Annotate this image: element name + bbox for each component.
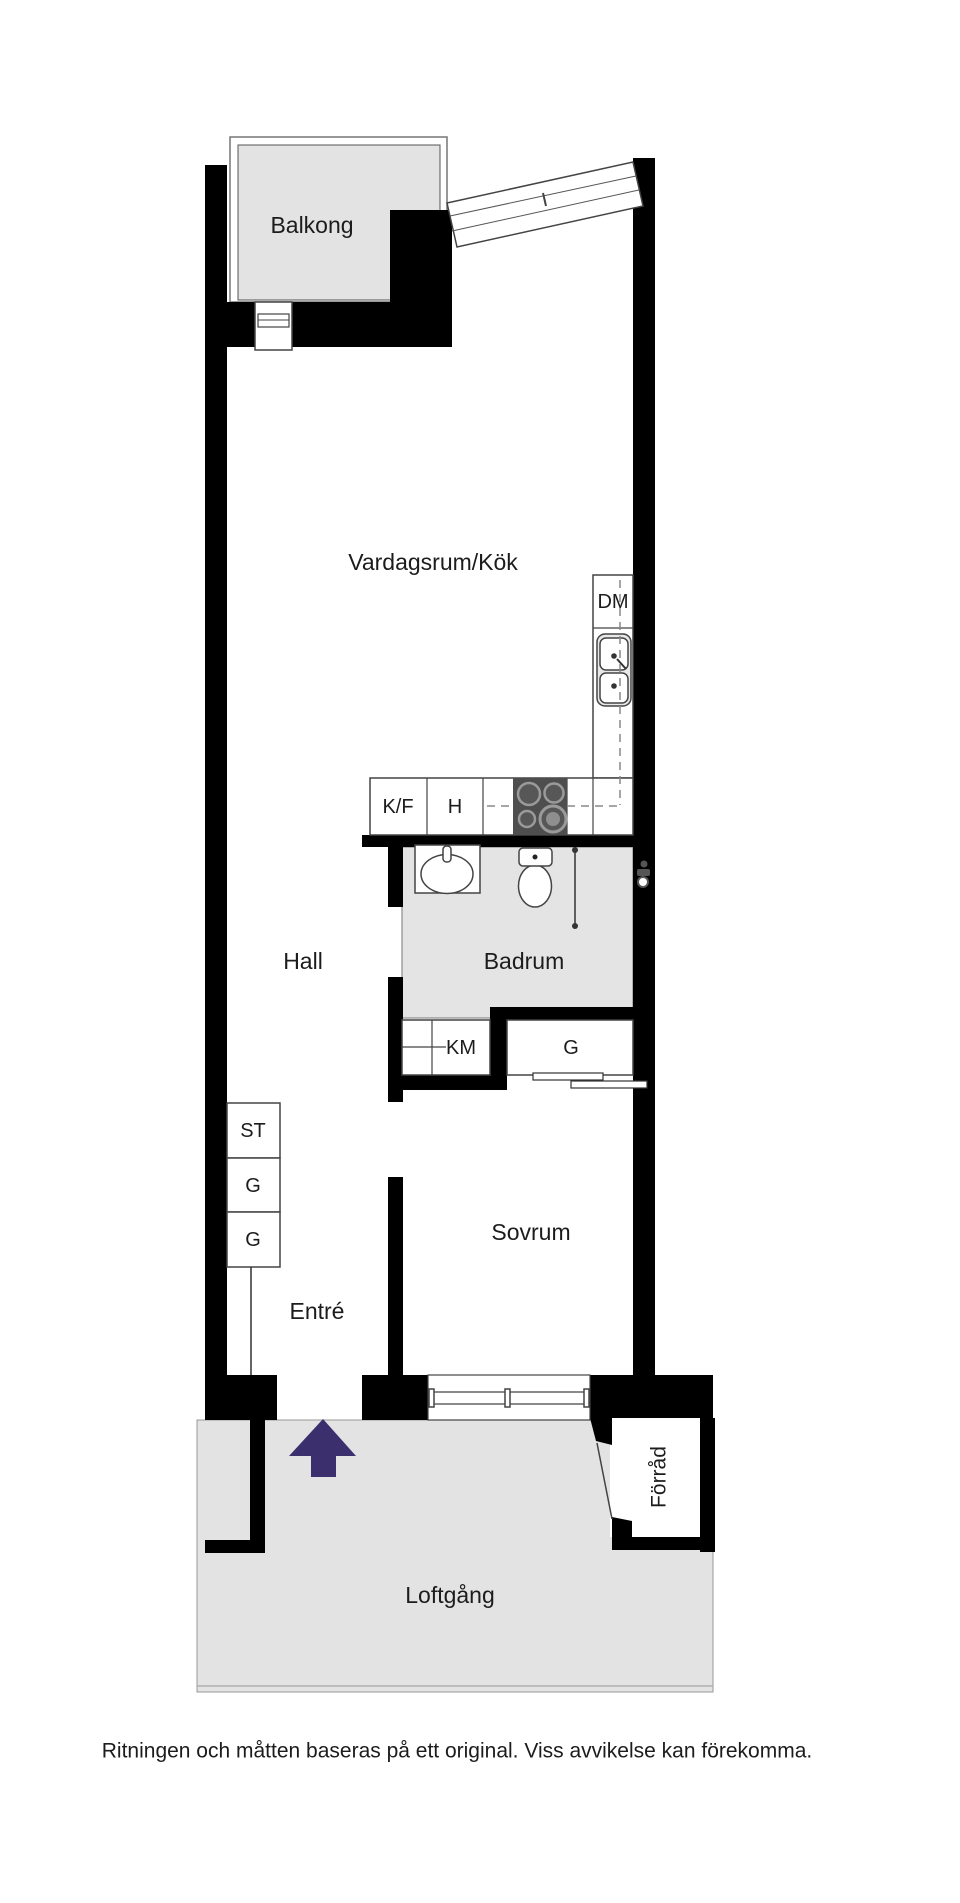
floorplan-canvas: Balkong Vardagsrum/Kök DM K/F H Hall Bad… bbox=[0, 0, 960, 1903]
washing-machine-label: KM bbox=[446, 1037, 476, 1059]
closet-g1-label: G bbox=[245, 1175, 261, 1197]
balcony-label: Balkong bbox=[270, 212, 353, 238]
toilet-bowl bbox=[519, 865, 552, 907]
wall-bathroom-left-lower bbox=[388, 977, 403, 1102]
toilet-icon bbox=[519, 848, 553, 907]
bedroom-window bbox=[428, 1375, 590, 1420]
entry-label: Entré bbox=[290, 1298, 345, 1324]
wall-bedroom-left bbox=[388, 1177, 403, 1375]
burner bbox=[545, 784, 564, 803]
window-end-tick bbox=[584, 1389, 589, 1407]
wall-bathroom-left-upper bbox=[388, 845, 403, 907]
stove-icon bbox=[513, 778, 567, 835]
washbasin-tap bbox=[443, 846, 451, 862]
wall-balcony-corner bbox=[390, 210, 452, 347]
bedroom-label: Sovrum bbox=[491, 1219, 570, 1245]
burner-center bbox=[546, 812, 560, 826]
burner bbox=[519, 811, 535, 827]
shower-mixer-body bbox=[637, 869, 650, 876]
sink-drain bbox=[611, 653, 617, 659]
storage-label: Förråd bbox=[648, 1446, 671, 1508]
walkway-label: Loftgång bbox=[405, 1582, 495, 1608]
cabinet-h-label: H bbox=[448, 796, 462, 818]
wall-right bbox=[633, 158, 655, 1375]
fridge-freezer-label: K/F bbox=[382, 796, 413, 818]
closet-st-label: ST bbox=[240, 1120, 266, 1142]
shower-head bbox=[638, 877, 648, 887]
wall-km-bottom bbox=[402, 1075, 507, 1090]
closet-g2-label: G bbox=[245, 1229, 261, 1251]
toilet-button bbox=[533, 855, 538, 860]
sliding-door-panel bbox=[571, 1081, 647, 1088]
disclaimer-text: Ritningen och måtten baseras på ett orig… bbox=[102, 1740, 812, 1763]
window-mullion-tick bbox=[505, 1389, 510, 1407]
washbasin-icon bbox=[415, 845, 480, 894]
hall-label: Hall bbox=[283, 948, 323, 974]
wall-storage-bottom bbox=[612, 1537, 715, 1550]
sliding-door-panel bbox=[533, 1073, 603, 1080]
wall-walkway-alcove-vertical bbox=[250, 1420, 265, 1553]
dishwasher-label: DM bbox=[597, 591, 628, 613]
wardrobe-label: G bbox=[563, 1037, 579, 1059]
window-end-tick bbox=[429, 1389, 434, 1407]
wall-balcony-right bbox=[292, 302, 390, 347]
shower-screen-end bbox=[572, 923, 578, 929]
wall-bottom-left bbox=[205, 1375, 277, 1420]
bathroom-label: Badrum bbox=[484, 948, 565, 974]
sink-drain bbox=[611, 683, 617, 689]
livingroom-kitchen-label: Vardagsrum/Kök bbox=[348, 549, 518, 575]
wall-left bbox=[205, 165, 227, 1375]
wall-balcony-left bbox=[227, 302, 255, 347]
burner bbox=[518, 783, 540, 805]
balcony-door bbox=[255, 302, 292, 350]
wall-kitchen-bathroom bbox=[362, 835, 655, 847]
wall-wardrobe-top bbox=[490, 1007, 655, 1020]
wall-bottom-right bbox=[590, 1375, 713, 1418]
wall-bottom-middle bbox=[362, 1375, 428, 1420]
kitchen-sink-icon bbox=[597, 634, 631, 706]
shower-mixer-knob bbox=[641, 861, 648, 868]
wall-walkway-alcove-horizontal bbox=[205, 1540, 265, 1553]
wall-storage-right bbox=[700, 1418, 715, 1552]
shower-screen-end bbox=[572, 847, 578, 853]
